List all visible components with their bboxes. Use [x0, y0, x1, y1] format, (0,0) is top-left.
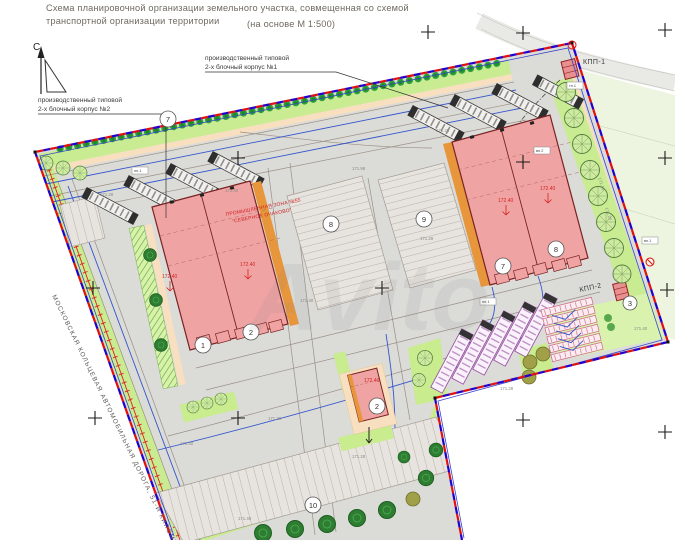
- page-title-line1: Схема планировочной организации земельно…: [46, 3, 409, 13]
- svg-text:пл.1: пл.1: [134, 169, 141, 173]
- corpus1-callout-line2: 2-х блочный корпус №1: [205, 63, 278, 71]
- svg-text:171.28: 171.28: [100, 192, 114, 197]
- svg-text:171.98: 171.98: [352, 166, 366, 171]
- site-plan-screenshot: С производственный типовой 2-х блочный к…: [0, 0, 675, 540]
- svg-text:172.40: 172.40: [540, 186, 556, 192]
- parking-patch-west2: [16, 323, 52, 363]
- corpus1-callout-line1: производственный типовой: [205, 54, 289, 62]
- page-title-scale: (на основе М 1:500): [247, 19, 335, 29]
- svg-text:171.28: 171.28: [420, 236, 434, 241]
- svg-text:172.40: 172.40: [364, 378, 380, 384]
- plan-number-block7: 7: [501, 262, 505, 271]
- plan-number-hedge: 7: [166, 115, 170, 124]
- svg-text:171.40: 171.40: [634, 326, 648, 331]
- svg-text:вл.1: вл.1: [644, 239, 651, 243]
- svg-text:172.40: 172.40: [162, 274, 178, 280]
- plan-number-parking8: 8: [329, 220, 333, 229]
- svg-text:171.28: 171.28: [500, 386, 514, 391]
- svg-text:171.40: 171.40: [225, 188, 239, 193]
- page-title-line2: транспортной организации территории: [46, 16, 219, 26]
- svg-text:171.40: 171.40: [180, 441, 194, 446]
- site-plan-drawing: С производственный типовой 2-х блочный к…: [0, 0, 675, 540]
- svg-text:171.28: 171.28: [268, 416, 282, 421]
- plan-number-aux: 2: [375, 402, 379, 411]
- svg-text:тп.1: тп.1: [569, 84, 576, 88]
- svg-text:172.40: 172.40: [498, 198, 514, 204]
- plan-number-block1: 1: [201, 341, 205, 350]
- corpus2-callout-line2: 2-х блочный корпус №2: [38, 105, 111, 113]
- svg-text:171.28: 171.28: [352, 454, 366, 459]
- north-label: С: [33, 42, 40, 53]
- svg-text:171.40: 171.40: [238, 516, 252, 521]
- north-arrow-icon: С: [33, 42, 66, 94]
- plan-number-kpp2: 3: [628, 299, 632, 308]
- watermark: Avito: [248, 244, 490, 351]
- corpus2-callout-line1: производственный типовой: [38, 96, 122, 104]
- svg-text:171.28: 171.28: [436, 128, 450, 133]
- plan-number-parking9: 9: [422, 215, 426, 224]
- plan-number-parking10: 10: [309, 501, 317, 510]
- kpp1-label: КПП-1: [583, 59, 605, 66]
- svg-text:вл.2: вл.2: [536, 149, 543, 153]
- plan-number-block8: 8: [554, 245, 558, 254]
